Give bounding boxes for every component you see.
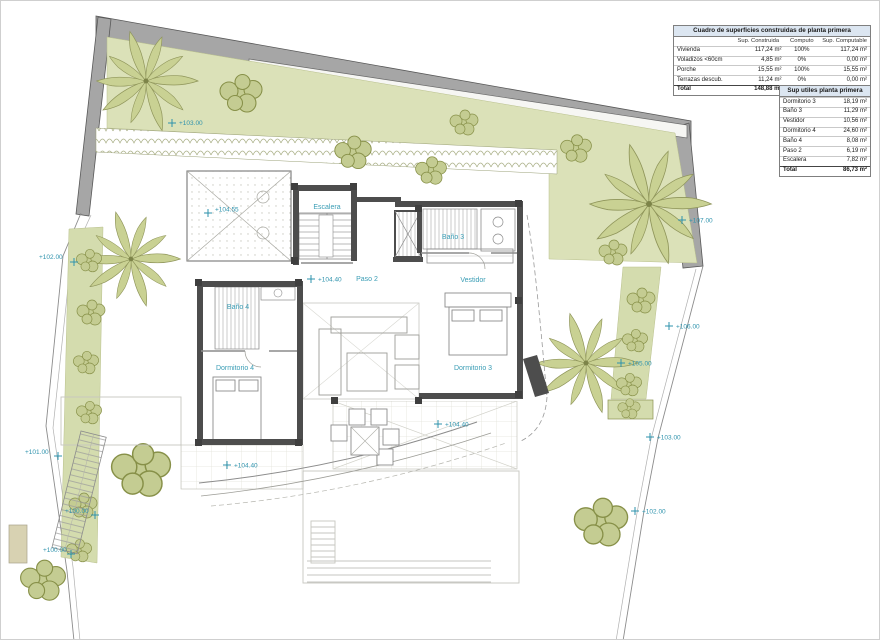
cell: 15,55 m² xyxy=(819,66,870,76)
cell: Paso 2 xyxy=(780,147,831,157)
cell: 0% xyxy=(784,76,819,86)
tree-icon xyxy=(112,444,171,497)
svg-text:+104.40: +104.40 xyxy=(234,463,258,470)
cell: Sup. Computable xyxy=(819,37,870,46)
cell: Baño 4 xyxy=(780,137,831,147)
cell: 148,88 m² xyxy=(732,85,784,94)
cell: 24,60 m² xyxy=(831,127,870,137)
room-label-bano3: Baño 3 xyxy=(442,234,464,241)
cell: Baño 3 xyxy=(780,107,831,117)
site-plan-drawing: Escalera Baño 3 Vestidor Dormitorio 3 Pa… xyxy=(1,1,880,640)
svg-text:+102.00: +102.00 xyxy=(39,254,63,261)
cell: 7,82 m² xyxy=(831,156,870,166)
cell: Computo xyxy=(784,37,819,46)
cell: 6,19 m² xyxy=(831,147,870,157)
svg-text:+105.00: +105.00 xyxy=(628,361,652,368)
cell: 10,56 m² xyxy=(831,117,870,127)
table-row: Voladizos <60cm 4,85 m² 0% 0,00 m² xyxy=(674,56,870,66)
svg-text:+104.40: +104.40 xyxy=(445,422,469,429)
table-row: Paso 2 6,19 m² xyxy=(780,147,870,157)
cell: 8,08 m² xyxy=(831,137,870,147)
cell: Dormitorio 3 xyxy=(780,98,831,108)
table-row: Vivienda 117,24 m² 100% 117,24 m² xyxy=(674,46,870,56)
cell: 0,00 m² xyxy=(819,76,870,86)
table-header-row: Sup. Construida Computo Sup. Computable xyxy=(674,37,870,46)
room-label-vestidor: Vestidor xyxy=(460,277,486,284)
table-row: Baño 3 11,29 m² xyxy=(780,107,870,117)
table-row: Terrazas descub. 11,24 m² 0% 0,00 m² xyxy=(674,76,870,86)
cell: 86,73 m² xyxy=(831,166,870,175)
table-row: Dormitorio 3 18,19 m² xyxy=(780,98,870,108)
cell: Sup. Construida xyxy=(732,37,784,46)
table-row: Dormitorio 4 24,60 m² xyxy=(780,127,870,137)
table-row: Porche 15,55 m² 100% 15,55 m² xyxy=(674,66,870,76)
cell: Porche xyxy=(674,66,732,76)
cell xyxy=(674,37,732,46)
svg-text:+100.00: +100.00 xyxy=(65,508,89,515)
svg-text:+102.00: +102.00 xyxy=(642,509,666,516)
svg-text:+104.40: +104.40 xyxy=(318,277,342,284)
roof-terrace xyxy=(187,171,291,261)
cell: 0% xyxy=(784,56,819,66)
useful-areas-table-title: Sup utiles planta primera xyxy=(780,86,870,97)
tree-icon xyxy=(574,498,627,546)
cell: 0,00 m² xyxy=(819,56,870,66)
svg-text:+103.00: +103.00 xyxy=(657,435,681,442)
tree-icon xyxy=(21,560,66,600)
cell: 117,24 m² xyxy=(819,46,870,56)
built-areas-table-title: Cuadro de superficies construidas de pla… xyxy=(674,26,870,37)
svg-text:+107.00: +107.00 xyxy=(689,218,713,225)
svg-text:+103.00: +103.00 xyxy=(179,120,203,127)
elevation-marker: +106.00 xyxy=(665,322,700,331)
room-label-paso2: Paso 2 xyxy=(356,276,378,283)
cell: Vivienda xyxy=(674,46,732,56)
cell: Terrazas descub. xyxy=(674,76,732,86)
cell: 15,55 m² xyxy=(732,66,784,76)
room-label-bano4: Baño 4 xyxy=(227,304,249,311)
room-label-dormitorio3: Dormitorio 3 xyxy=(454,365,492,372)
table-total-row: Total 86,73 m² xyxy=(780,166,870,175)
elevation-marker: +102.00 xyxy=(631,507,666,516)
room-label-dormitorio4: Dormitorio 4 xyxy=(216,365,254,372)
useful-areas-table: Sup utiles planta primera Dormitorio 3 1… xyxy=(779,85,871,177)
cell: Total xyxy=(780,166,831,175)
svg-text:+104.55: +104.55 xyxy=(215,207,239,214)
cell: Escalera xyxy=(780,156,831,166)
elevation-marker: +103.00 xyxy=(646,433,681,442)
cell: Vestidor xyxy=(780,117,831,127)
cell: Total xyxy=(674,85,732,94)
cell: 4,85 m² xyxy=(732,56,784,66)
cell: 117,24 m² xyxy=(732,46,784,56)
svg-text:+101.00: +101.00 xyxy=(25,449,49,456)
room-label-escalera: Escalera xyxy=(313,204,340,211)
table-row: Baño 4 8,08 m² xyxy=(780,137,870,147)
shower-hatch xyxy=(423,209,477,249)
cell: 18,19 m² xyxy=(831,98,870,108)
table-row: Vestidor 10,56 m² xyxy=(780,117,870,127)
cell: 11,29 m² xyxy=(831,107,870,117)
svg-text:+106.00: +106.00 xyxy=(676,324,700,331)
staircase xyxy=(299,213,353,259)
svg-text:+100.00: +100.00 xyxy=(43,547,67,554)
cell: Dormitorio 4 xyxy=(780,127,831,137)
table-row: Escalera 7,82 m² xyxy=(780,156,870,166)
cell: Voladizos <60cm xyxy=(674,56,732,66)
shower-hatch xyxy=(215,287,259,349)
plan-sheet: Escalera Baño 3 Vestidor Dormitorio 3 Pa… xyxy=(0,0,880,640)
cell: 11,24 m² xyxy=(732,76,784,86)
cell: 100% xyxy=(784,66,819,76)
cell: 100% xyxy=(784,46,819,56)
